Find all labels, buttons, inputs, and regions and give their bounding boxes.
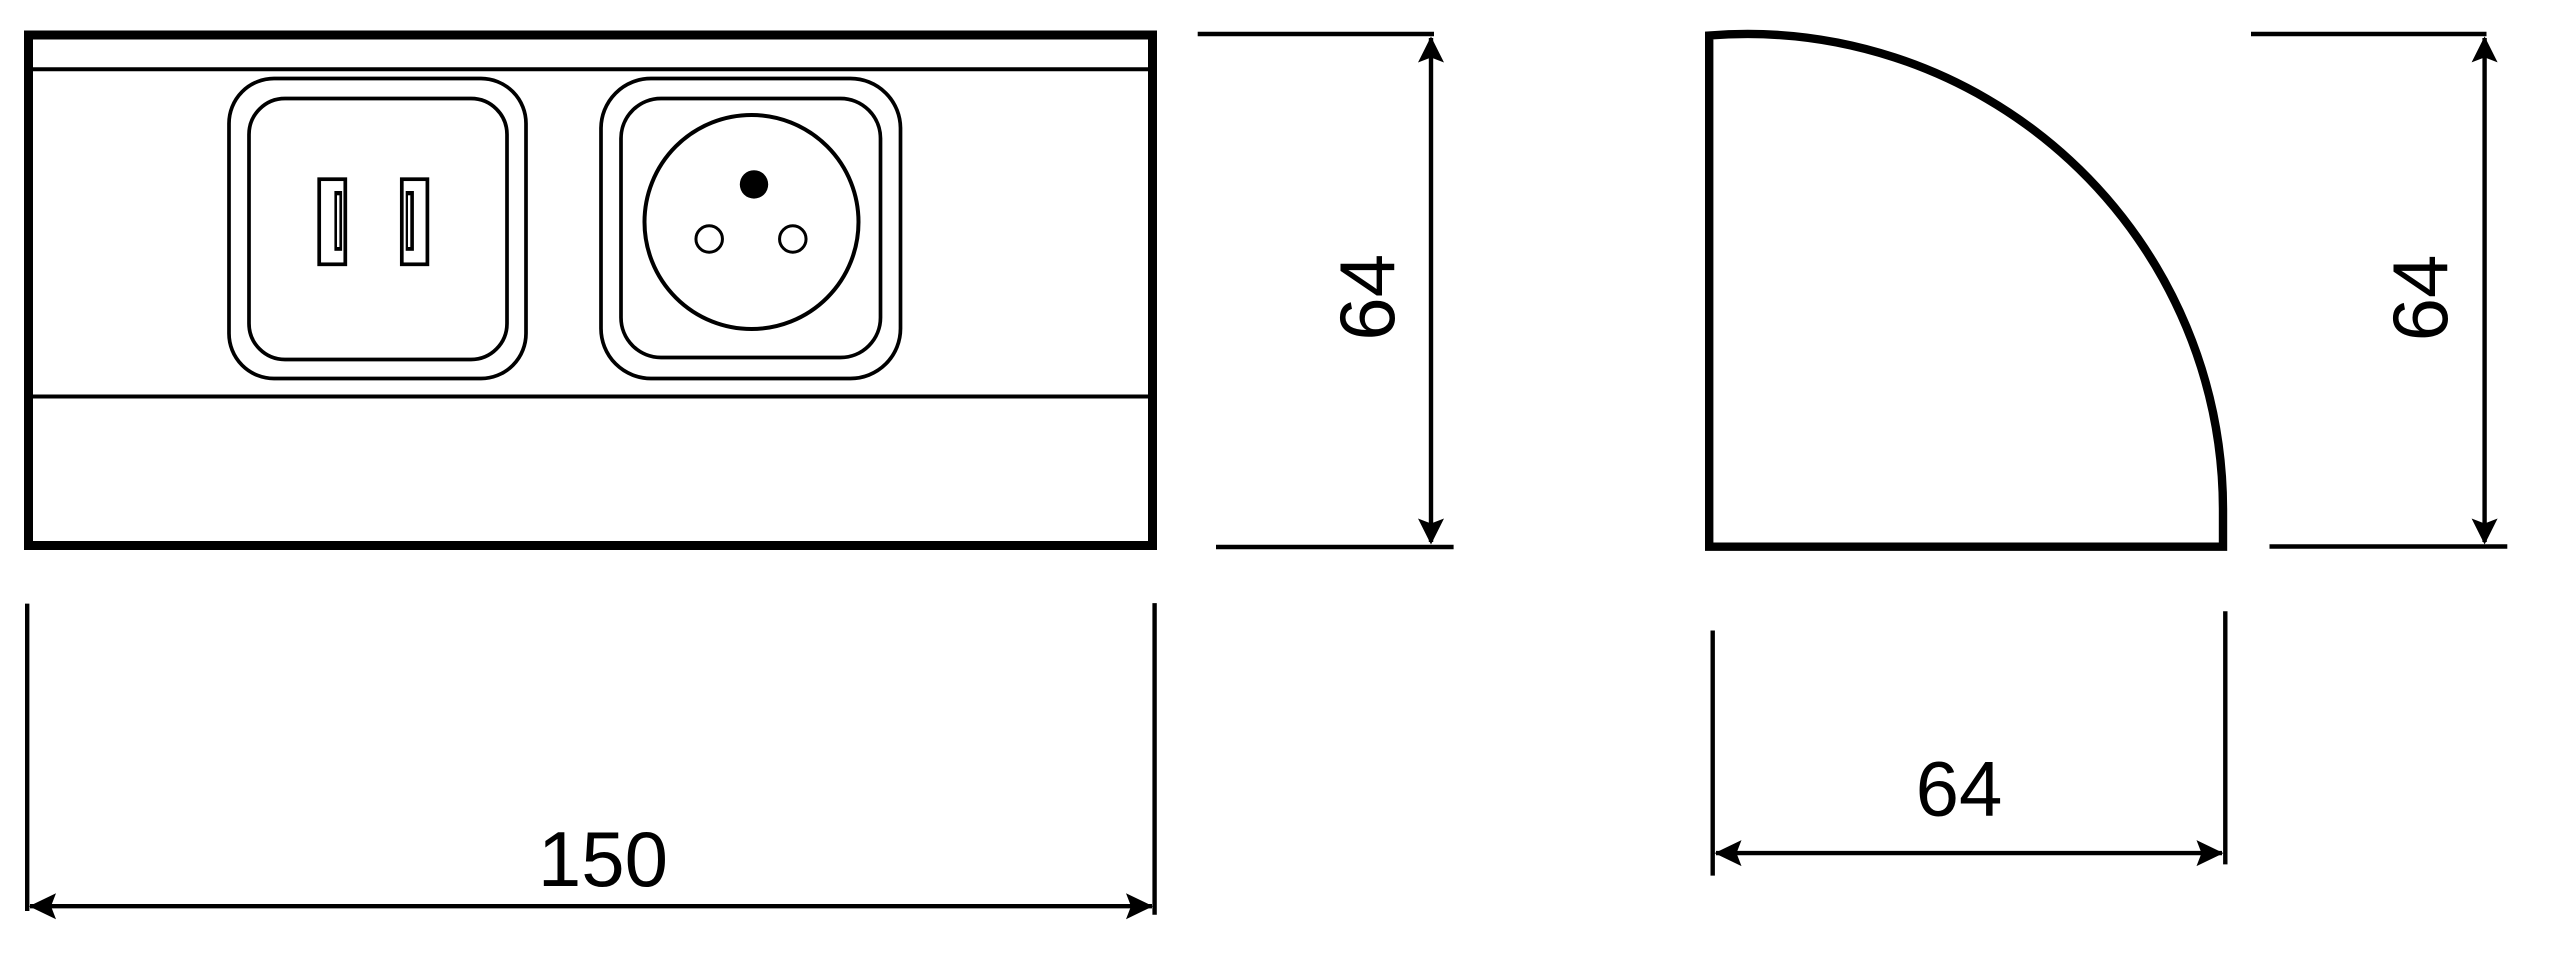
svg-text:64: 64 [1916,745,2003,833]
svg-text:64: 64 [1323,254,1411,341]
svg-text:64: 64 [2376,255,2464,342]
svg-text:150: 150 [538,815,668,903]
